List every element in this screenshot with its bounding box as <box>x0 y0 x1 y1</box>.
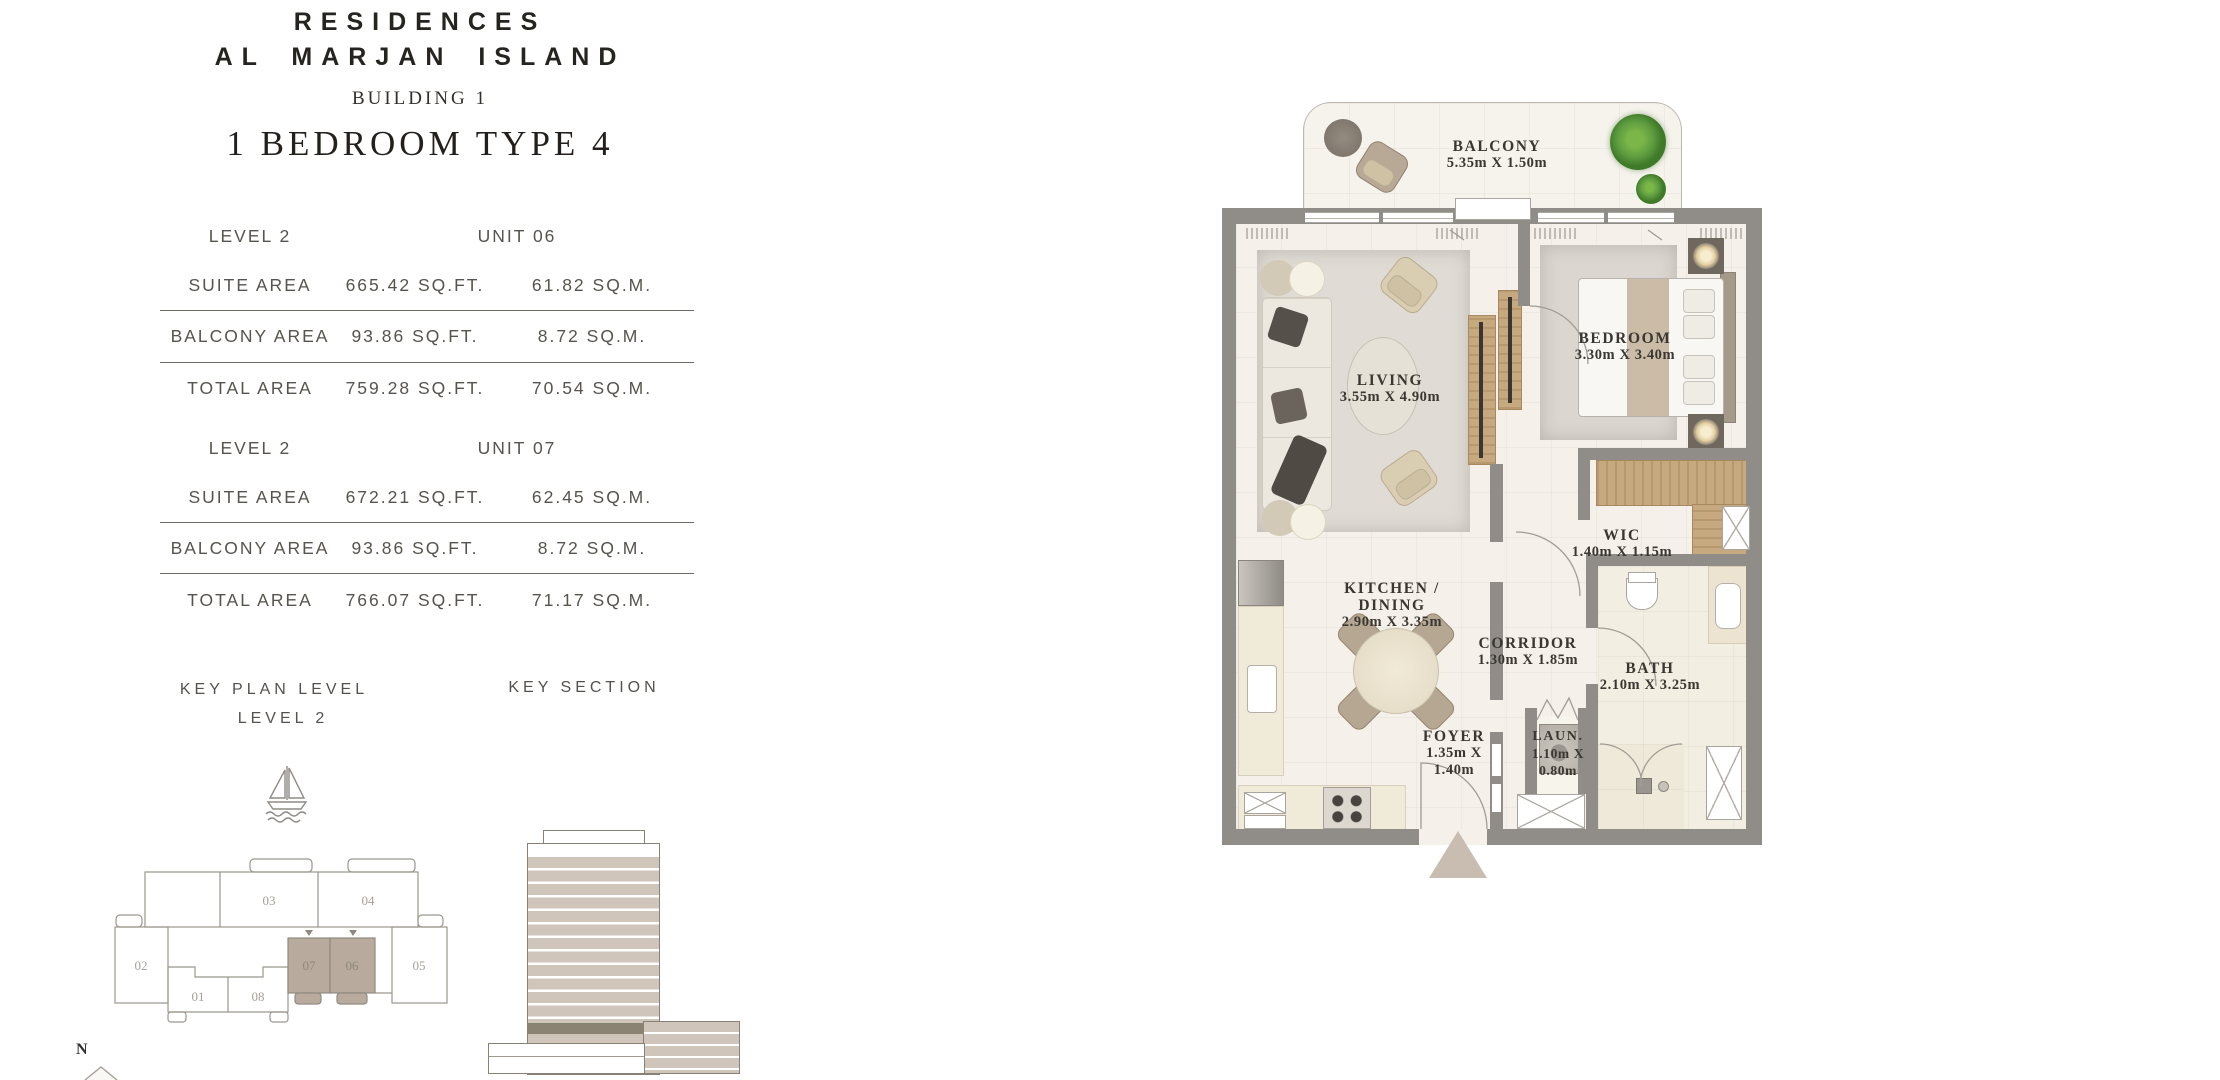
tower-floors <box>528 857 659 1023</box>
unit06-marker-icon <box>349 930 357 936</box>
keyplan-num-02: 02 <box>135 958 148 973</box>
row-sqft: 672.21 SQ.FT. <box>340 487 490 508</box>
key-plan-level: LEVEL 2 <box>163 710 403 728</box>
north-label: N <box>76 1041 88 1059</box>
table-row: TOTAL AREA 759.28 SQ.FT. 70.54 SQ.M. <box>160 378 694 399</box>
low-building <box>488 1043 645 1074</box>
row-sqft: 759.28 SQ.FT. <box>340 378 490 399</box>
divider <box>160 522 694 523</box>
room-label-wic: WIC 1.40m X 1.15m <box>1552 527 1692 561</box>
row-label: TOTAL AREA <box>160 378 340 399</box>
table-row: TOTAL AREA 766.07 SQ.FT. 71.17 SQ.M. <box>160 590 694 611</box>
room-label-kitchen: KITCHEN / DINING 2.90m X 3.35m <box>1312 580 1472 631</box>
tower-body <box>527 843 660 1075</box>
room-label-living: LIVING 3.55m X 4.90m <box>1310 372 1470 406</box>
table-row: SUITE AREA 672.21 SQ.FT. 62.45 SQ.M. <box>160 487 694 508</box>
divider <box>160 310 694 311</box>
brochure-page: { "header": { "brand_line1": "RESIDENCES… <box>0 0 2220 1080</box>
keyplan-balcony <box>348 859 415 872</box>
page-title: 1 BEDROOM TYPE 4 <box>160 124 680 164</box>
row-sqft: 665.42 SQ.FT. <box>340 275 490 296</box>
row-sqm: 70.54 SQ.M. <box>490 378 694 399</box>
room-label-bath: BATH 2.10m X 3.25m <box>1570 660 1730 694</box>
north-arrow-icon <box>84 1066 118 1080</box>
row-sqm: 8.72 SQ.M. <box>490 326 694 347</box>
keyplan-num-04: 04 <box>362 893 376 908</box>
key-plan-drawing: 03 04 02 05 01 08 07 06 <box>100 845 470 1045</box>
row-label: TOTAL AREA <box>160 590 340 611</box>
room-label-foyer: FOYER 1.35m X 1.40m <box>1374 728 1534 779</box>
table-header: LEVEL 2 UNIT 07 <box>160 438 694 459</box>
floor-plan: BALCONY 5.35m X 1.50m LIVING 3.55m X 4.9… <box>1222 92 1762 882</box>
keyplan-num-01: 01 <box>192 989 205 1004</box>
table-row: BALCONY AREA 93.86 SQ.FT. 8.72 SQ.M. <box>160 326 694 347</box>
table-row: SUITE AREA 665.42 SQ.FT. 61.82 SQ.M. <box>160 275 694 296</box>
room-label-bedroom: BEDROOM 3.30m X 3.40m <box>1545 330 1705 364</box>
podium <box>643 1021 740 1074</box>
level-label: LEVEL 2 <box>160 438 340 459</box>
keyplan-num-03: 03 <box>263 893 276 908</box>
keyplan-num-08: 08 <box>252 989 265 1004</box>
row-label: BALCONY AREA <box>160 538 340 559</box>
unit07-marker-icon <box>305 930 313 936</box>
row-sqm: 62.45 SQ.M. <box>490 487 694 508</box>
building-label: BUILDING 1 <box>160 88 680 110</box>
room-label-balcony: BALCONY 5.35m X 1.50m <box>1417 138 1577 172</box>
keyplan-num-06: 06 <box>346 958 360 973</box>
table-header: LEVEL 2 UNIT 06 <box>160 226 694 247</box>
unit-label: UNIT 06 <box>340 226 694 247</box>
keyplan-balcony <box>250 859 312 872</box>
row-sqm: 61.82 SQ.M. <box>490 275 694 296</box>
row-sqm: 8.72 SQ.M. <box>490 538 694 559</box>
row-sqft: 766.07 SQ.FT. <box>340 590 490 611</box>
table-row: BALCONY AREA 93.86 SQ.FT. 8.72 SQ.M. <box>160 538 694 559</box>
key-plan-title: KEY PLAN LEVEL <box>154 681 394 699</box>
brand-line1: RESIDENCES <box>160 8 680 37</box>
room-label-laundry: LAUN. 1.10m X 0.80m <box>1518 728 1598 779</box>
divider <box>160 573 694 574</box>
tower-highlight-level2 <box>528 1023 659 1034</box>
row-label: SUITE AREA <box>160 487 340 508</box>
row-sqm: 71.17 SQ.M. <box>490 590 694 611</box>
unit-label: UNIT 07 <box>340 438 694 459</box>
brand-line2: AL MARJAN ISLAND <box>160 43 680 72</box>
sailboat-icon <box>260 764 312 826</box>
entry-arrow-icon <box>1429 831 1487 878</box>
divider <box>160 362 694 363</box>
area-table-unit07: LEVEL 2 UNIT 07 SUITE AREA 672.21 SQ.FT.… <box>160 424 694 624</box>
laundry-bifold-door <box>1537 698 1578 720</box>
keyplan-num-05: 05 <box>413 958 426 973</box>
level-label: LEVEL 2 <box>160 226 340 247</box>
row-label: SUITE AREA <box>160 275 340 296</box>
area-table-unit06: LEVEL 2 UNIT 06 SUITE AREA 665.42 SQ.FT.… <box>160 212 694 412</box>
keyplan-num-07: 07 <box>303 958 317 973</box>
shower-door-swing <box>1600 744 1642 786</box>
row-sqft: 93.86 SQ.FT. <box>340 326 490 347</box>
shower-door-swing <box>1640 744 1682 786</box>
row-sqft: 93.86 SQ.FT. <box>340 538 490 559</box>
key-section-drawing <box>488 828 744 1080</box>
row-label: BALCONY AREA <box>160 326 340 347</box>
brand-header: RESIDENCES AL MARJAN ISLAND BUILDING 1 1… <box>160 8 680 164</box>
key-section-title: KEY SECTION <box>464 679 704 697</box>
